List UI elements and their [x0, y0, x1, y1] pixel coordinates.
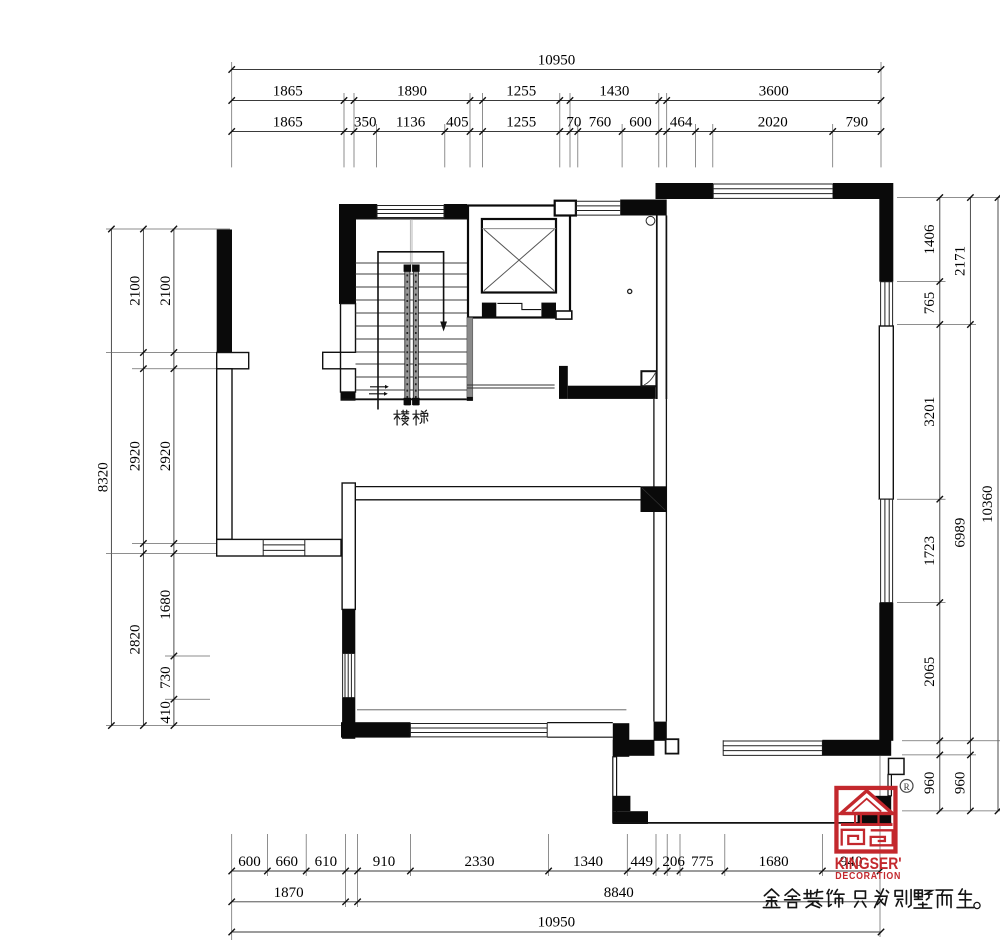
svg-text:2820: 2820	[127, 625, 143, 655]
svg-text:410: 410	[158, 701, 174, 724]
svg-text:8320: 8320	[95, 462, 111, 492]
svg-text:775: 775	[691, 854, 714, 870]
svg-text:600: 600	[238, 854, 261, 870]
svg-text:960: 960	[922, 772, 938, 795]
svg-text:206: 206	[662, 854, 685, 870]
svg-text:449: 449	[631, 854, 654, 870]
svg-text:464: 464	[670, 115, 693, 131]
svg-text:1865: 1865	[273, 84, 303, 100]
svg-text:1680: 1680	[158, 590, 174, 620]
svg-text:610: 610	[315, 854, 338, 870]
svg-text:2920: 2920	[158, 441, 174, 471]
svg-text:1255: 1255	[506, 115, 536, 131]
svg-text:3201: 3201	[922, 397, 938, 427]
svg-text:1406: 1406	[922, 224, 938, 255]
svg-text:2330: 2330	[465, 854, 495, 870]
svg-text:3600: 3600	[759, 84, 789, 100]
svg-text:1340: 1340	[573, 854, 603, 870]
svg-text:405: 405	[446, 115, 469, 131]
svg-text:765: 765	[922, 292, 938, 315]
svg-text:350: 350	[354, 115, 377, 131]
svg-text:2100: 2100	[127, 276, 143, 306]
svg-text:10950: 10950	[538, 53, 576, 69]
svg-text:1870: 1870	[274, 885, 304, 901]
svg-text:960: 960	[952, 772, 968, 795]
svg-text:790: 790	[846, 115, 869, 131]
svg-text:660: 660	[276, 854, 299, 870]
svg-text:8840: 8840	[604, 885, 634, 901]
svg-text:R: R	[904, 782, 910, 792]
svg-text:70: 70	[566, 115, 581, 131]
svg-text:1430: 1430	[599, 84, 629, 100]
svg-text:10360: 10360	[980, 485, 996, 523]
svg-text:1865: 1865	[273, 115, 303, 131]
svg-text:10950: 10950	[538, 915, 576, 931]
svg-text:DECORATION: DECORATION	[835, 870, 901, 881]
svg-text:2065: 2065	[922, 657, 938, 687]
svg-text:1723: 1723	[922, 536, 938, 566]
svg-text:730: 730	[158, 666, 174, 689]
svg-text:1680: 1680	[759, 854, 789, 870]
svg-text:2920: 2920	[127, 441, 143, 471]
svg-text:2171: 2171	[952, 246, 968, 276]
svg-text:2100: 2100	[158, 276, 174, 306]
svg-text:1890: 1890	[397, 84, 427, 100]
svg-text:1255: 1255	[506, 84, 536, 100]
svg-text:600: 600	[629, 115, 652, 131]
svg-text:910: 910	[373, 854, 396, 870]
svg-text:6989: 6989	[952, 518, 968, 548]
svg-text:1136: 1136	[396, 115, 426, 131]
svg-text:760: 760	[589, 115, 612, 131]
svg-text:2020: 2020	[758, 115, 788, 131]
